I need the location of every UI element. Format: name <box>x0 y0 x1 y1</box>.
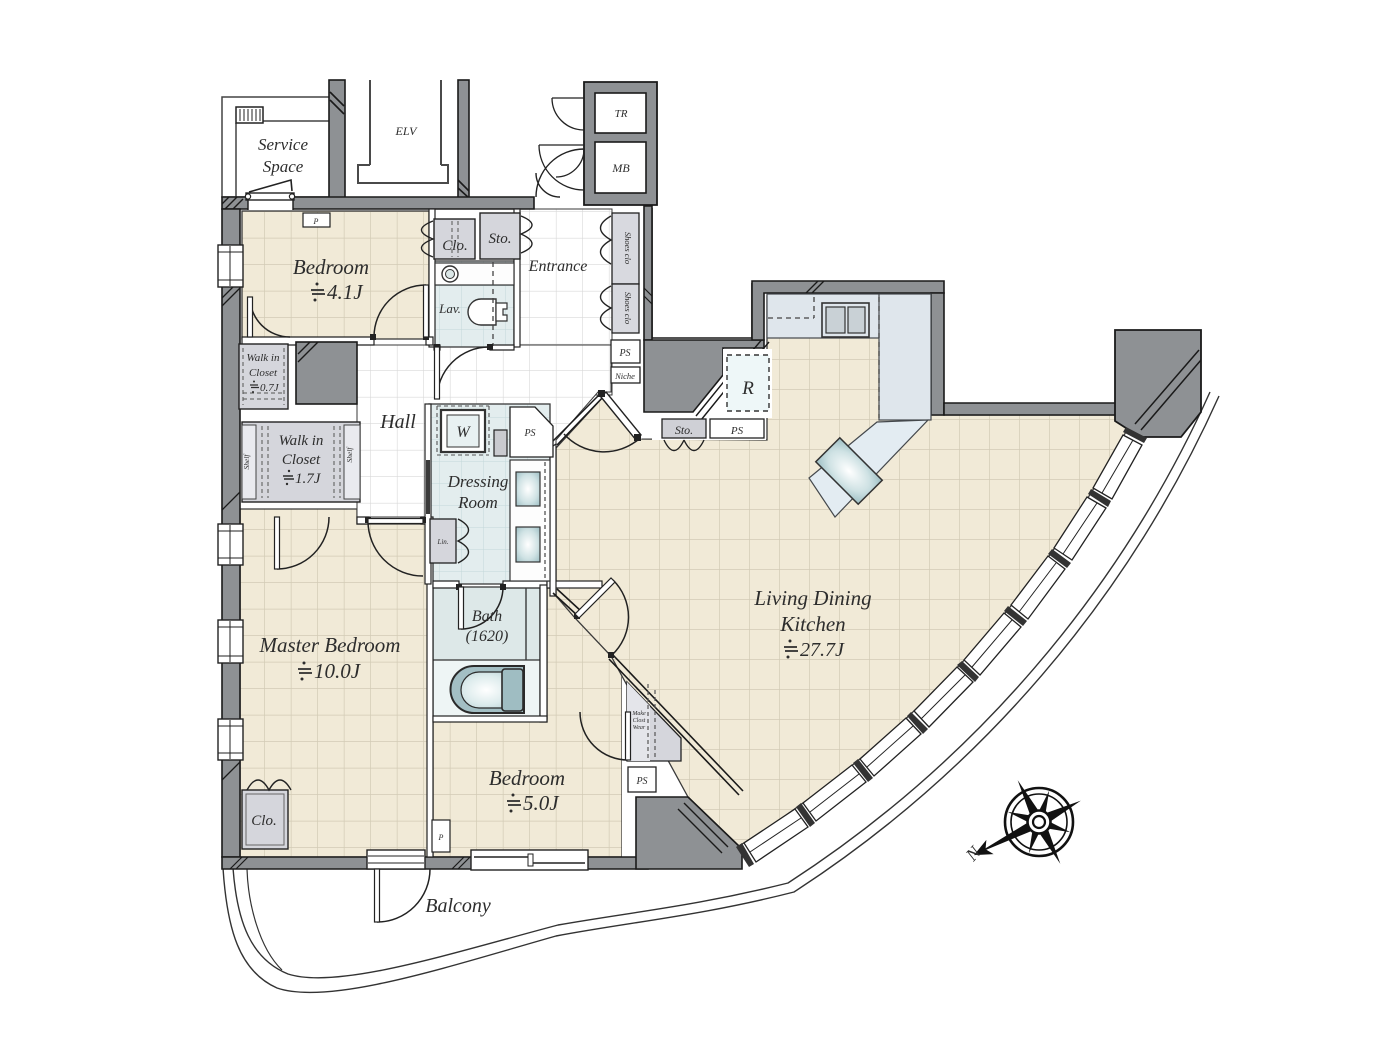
svg-text:PS: PS <box>523 428 535 439</box>
svg-text:4.1J: 4.1J <box>327 280 364 304</box>
svg-text:Hall: Hall <box>379 411 416 433</box>
svg-text:Living Dining: Living Dining <box>753 586 871 610</box>
svg-text:Service: Service <box>258 135 308 154</box>
svg-text:Entrance: Entrance <box>528 258 588 275</box>
svg-text:Shelf: Shelf <box>242 454 251 470</box>
svg-text:Room: Room <box>457 493 498 512</box>
svg-text:Master Bedroom: Master Bedroom <box>259 633 401 657</box>
svg-text:Bedroom: Bedroom <box>293 255 369 279</box>
svg-text:ELV: ELV <box>395 124 419 138</box>
svg-text:Closet: Closet <box>282 452 321 468</box>
svg-text:Closet: Closet <box>249 367 278 379</box>
svg-text:W: W <box>456 424 471 441</box>
svg-text:Balcony: Balcony <box>425 895 491 917</box>
svg-text:Bedroom: Bedroom <box>489 766 565 790</box>
svg-text:Space: Space <box>263 157 304 176</box>
svg-text:Dressing: Dressing <box>447 472 509 491</box>
svg-text:27.7J: 27.7J <box>800 639 845 661</box>
svg-text:Sto.: Sto. <box>489 231 512 247</box>
svg-text:Bath: Bath <box>472 608 502 625</box>
svg-text:R: R <box>741 378 754 399</box>
svg-text:TR: TR <box>615 108 628 120</box>
svg-text:Walk in: Walk in <box>279 433 324 449</box>
svg-text:Make: Make <box>631 711 646 717</box>
svg-text:Lav.: Lav. <box>438 301 461 316</box>
svg-text:Walk in: Walk in <box>247 352 280 364</box>
svg-text:Niche: Niche <box>614 371 635 381</box>
svg-text:Shoes clo: Shoes clo <box>623 292 633 324</box>
svg-text:Clo.: Clo. <box>442 238 467 254</box>
svg-text:0.7J: 0.7J <box>260 382 280 394</box>
svg-text:PS: PS <box>730 425 744 437</box>
svg-text:Shelf: Shelf <box>345 447 354 463</box>
svg-text:P: P <box>438 833 444 842</box>
svg-text:10.0J: 10.0J <box>314 659 362 683</box>
svg-text:Lin.: Lin. <box>436 538 448 546</box>
svg-text:Clo.: Clo. <box>251 813 276 829</box>
svg-text:Sto.: Sto. <box>675 423 693 437</box>
svg-text:5.0J: 5.0J <box>523 791 560 815</box>
svg-text:Shoes clo: Shoes clo <box>623 232 633 264</box>
svg-text:Wear: Wear <box>633 725 646 731</box>
svg-text:Clost: Clost <box>633 718 646 724</box>
svg-text:Kitchen: Kitchen <box>779 612 845 636</box>
svg-text:1.7J: 1.7J <box>295 471 322 487</box>
svg-text:PS: PS <box>618 348 630 359</box>
svg-text:MB: MB <box>611 161 630 175</box>
svg-text:(1620): (1620) <box>466 628 509 645</box>
svg-text:P: P <box>313 217 319 226</box>
svg-text:PS: PS <box>635 776 647 787</box>
